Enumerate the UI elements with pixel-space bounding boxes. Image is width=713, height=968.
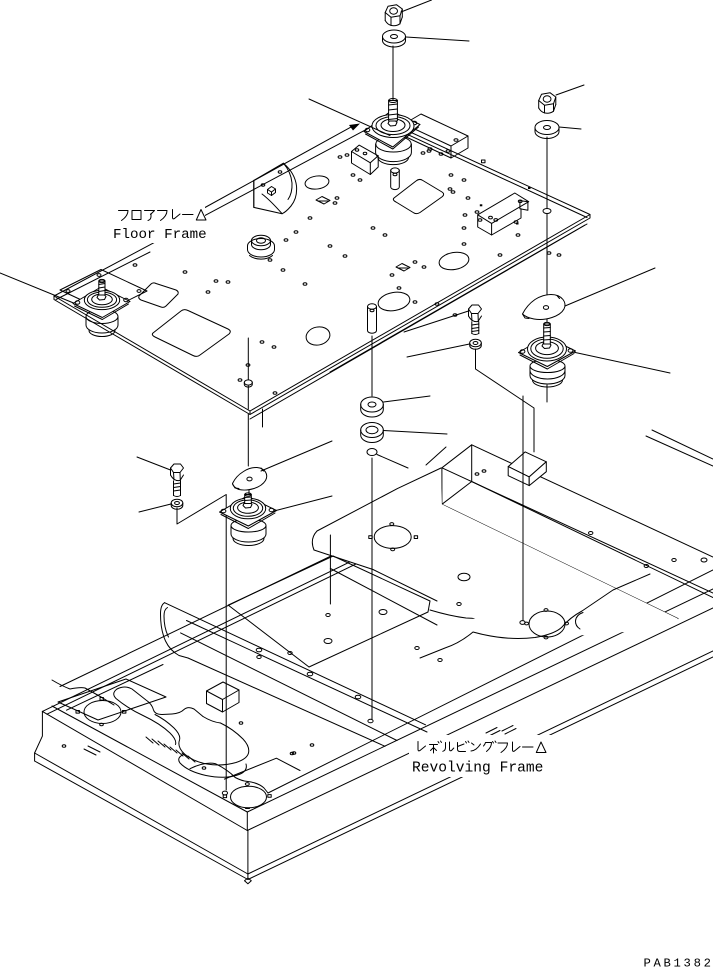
svg-text:PAB1382: PAB1382 <box>644 957 713 968</box>
svg-text:Revolving Frame: Revolving Frame <box>412 761 543 777</box>
svg-text:Floor Frame: Floor Frame <box>113 227 207 243</box>
